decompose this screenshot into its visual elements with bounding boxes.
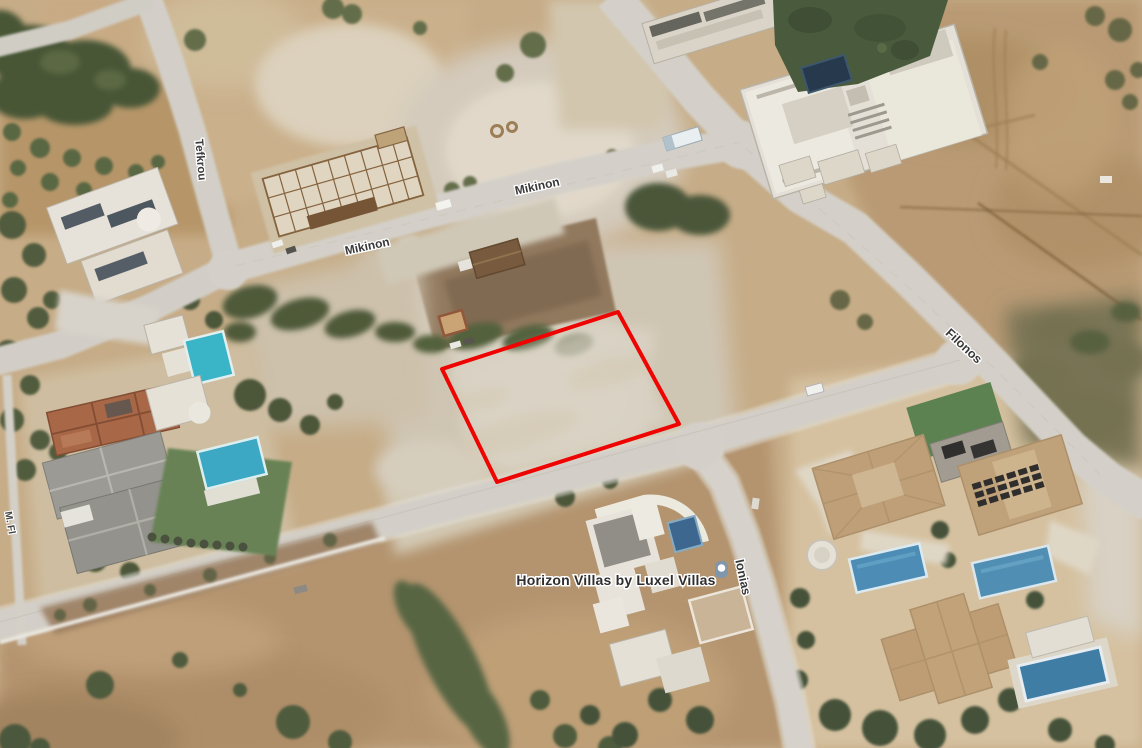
svg-text:Horizon Villas by Luxel Villas: Horizon Villas by Luxel Villas (516, 572, 715, 588)
